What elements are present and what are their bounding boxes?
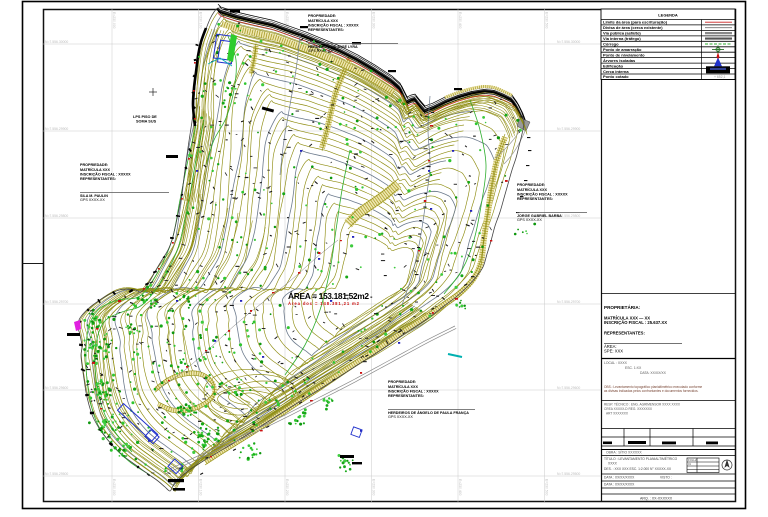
svg-text:N=7.556.30000: N=7.556.30000	[45, 40, 68, 44]
svg-text:N=7.556.29600: N=7.556.29600	[45, 386, 68, 390]
svg-text:MATRÍCULA XXX: MATRÍCULA XXX	[308, 18, 338, 23]
svg-text:Via pública (asfalto): Via pública (asfalto)	[603, 31, 641, 36]
svg-text:INSCRIÇÃO FISCAL : XXXXX: INSCRIÇÃO FISCAL : XXXXX	[388, 389, 439, 394]
svg-text:N=7.556.29700: N=7.556.29700	[45, 300, 68, 304]
svg-text:PROPRIETÁRIA:: PROPRIETÁRIA:	[604, 304, 641, 310]
svg-text:E=230.300: E=230.300	[372, 12, 376, 29]
svg-text:N=7.556.29500: N=7.556.29500	[557, 472, 580, 476]
svg-text:N=7.556.29900: N=7.556.29900	[557, 127, 580, 131]
svg-text:REPRESENTANTES:: REPRESENTANTES:	[308, 28, 344, 32]
svg-text:E=230.100: E=230.100	[199, 12, 203, 29]
svg-text:LPS PISO DE: LPS PISO DE	[133, 115, 157, 119]
svg-text:INSCRIÇÃO FISCAL : XXXXX: INSCRIÇÃO FISCAL : XXXXX	[517, 192, 568, 197]
svg-text:DATA : XX/XX/XXXX: DATA : XX/XX/XXXX	[604, 483, 635, 487]
svg-text:Ponto de nivelamento: Ponto de nivelamento	[603, 52, 645, 57]
svg-text:E=230.000: E=230.000	[112, 12, 116, 29]
svg-text:as divisas indicadas pelos con: as divisas indicadas pelos confrontantes…	[604, 389, 699, 393]
svg-text:E=230.100: E=230.100	[199, 479, 203, 496]
svg-text:OBRA : SÍTIO XXXXXX: OBRA : SÍTIO XXXXXX	[606, 451, 642, 455]
svg-text:SOMA SUS: SOMA SUS	[136, 120, 157, 124]
svg-text:GPS XXXX-XX: GPS XXXX-XX	[517, 218, 542, 222]
svg-text:RESP. TÉCNICO : ENG. AGRIMENS: RESP. TÉCNICO : ENG. AGRIMENSOR XXXX XXX…	[604, 402, 681, 407]
svg-text:N=7.556.29600: N=7.556.29600	[557, 386, 580, 390]
svg-text:E=230.300: E=230.300	[372, 479, 376, 496]
svg-text:PROPRIEDADE:: PROPRIEDADE:	[308, 14, 336, 18]
svg-text:Ponto cotado: Ponto cotado	[603, 74, 629, 79]
svg-text:DATA: XX/XX/XX: DATA: XX/XX/XX	[640, 371, 667, 375]
svg-text:Córrego: Córrego	[603, 42, 619, 47]
svg-text:CREA XXXXX-D REG. X: CREA XXXXX-D REG. XXXXXXX	[604, 407, 653, 411]
svg-text:Ponto de amarração: Ponto de amarração	[603, 47, 642, 52]
svg-text:E=230.500: E=230.500	[545, 12, 549, 29]
svg-text:E=230.000: E=230.000	[112, 479, 116, 496]
svg-text:01: 01	[688, 462, 692, 466]
svg-text:PROPRIEDADE:: PROPRIEDADE:	[80, 163, 108, 167]
svg-text:E=230.400: E=230.400	[458, 12, 462, 29]
svg-text:Cerca interna: Cerca interna	[603, 69, 629, 74]
svg-text:INSCRIÇÃO FISCAL : XXXXX: INSCRIÇÃO FISCAL : XXXXX	[308, 23, 359, 28]
svg-text:Área doc = 148.381,21 m2: Área doc = 148.381,21 m2	[288, 301, 360, 306]
svg-text:INSCRIÇÃO FISCAL : 25.637.XX: INSCRIÇÃO FISCAL : 25.637.XX	[604, 320, 667, 325]
svg-text:E=230.500: E=230.500	[545, 479, 549, 496]
svg-text:E=230.200: E=230.200	[285, 479, 289, 496]
svg-text:REPRESENTANTES:: REPRESENTANTES:	[388, 394, 424, 398]
svg-text:GPS XXXX-XX: GPS XXXX-XX	[80, 198, 105, 202]
svg-text:PROPRIEDADE:: PROPRIEDADE:	[517, 183, 545, 187]
svg-text:MATRÍCULA XXX: MATRÍCULA XXX	[388, 384, 418, 389]
svg-text:SPE: XXX: SPE: XXX	[604, 349, 623, 354]
svg-text:N=7.556.29900: N=7.556.29900	[45, 127, 68, 131]
svg-text:N=7.556.29500: N=7.556.29500	[45, 472, 68, 476]
svg-text:DATA : XX/XX/XXXX: DATA : XX/XX/XXXX	[604, 476, 635, 480]
svg-text:INSCRIÇÃO FISCAL : XXXXX: INSCRIÇÃO FISCAL : XXXXX	[80, 172, 131, 177]
svg-text:ESC. 1:XX: ESC. 1:XX	[625, 366, 642, 370]
svg-text:ARQ. : XX-XXXXXX: ARQ. : XX-XXXXXX	[640, 497, 673, 501]
svg-text:TÍTULO : LEVANTAMENTO PLANIALT: TÍTULO : LEVANTAMENTO PLANIALTIMÉTRICO	[604, 456, 678, 461]
svg-text:ART XXXXXXX: ART XXXXXXX	[606, 412, 629, 416]
svg-text:Limite da área (para escritura: Limite da área (para escrituração)	[603, 20, 668, 25]
svg-text:LOCAL : XXXX: LOCAL : XXXX	[604, 361, 628, 365]
svg-text:N=7.556.29800: N=7.556.29800	[45, 214, 68, 218]
svg-text:N=7.556.30000: N=7.556.30000	[557, 40, 580, 44]
svg-text:N=7.556.29700: N=7.556.29700	[557, 300, 580, 304]
svg-text:GPS XXXX-XX: GPS XXXX-XX	[308, 49, 333, 53]
svg-text:XXXX: XXXX	[608, 462, 618, 466]
svg-text:GPS XXXX-XX: GPS XXXX-XX	[388, 415, 413, 419]
svg-text:E=230.400: E=230.400	[458, 479, 462, 496]
svg-text:VISTO :: VISTO :	[660, 476, 672, 480]
svg-text:Divisa de área (cerca existent: Divisa de área (cerca existente)	[603, 25, 663, 30]
svg-text:+ 652,1: + 652,1	[714, 75, 726, 79]
svg-text:DES. : XXX XXX ESC. 1:2.000: DES. : XXX XXX ESC. 1:2.000 N° XXXXX-XX	[604, 467, 672, 471]
svg-text:ÁREA = 153.181,52m2: ÁREA = 153.181,52m2	[288, 290, 369, 301]
svg-text:LEGENDA: LEGENDA	[658, 13, 678, 18]
svg-text:Árvores isoladas: Árvores isoladas	[603, 58, 636, 63]
svg-text:PROPRIEDADE:: PROPRIEDADE:	[388, 380, 416, 384]
svg-text:Edificação: Edificação	[603, 63, 624, 68]
svg-text:Via interna (tráfego): Via interna (tráfego)	[603, 36, 641, 41]
svg-text:MATRÍCULA XXX: MATRÍCULA XXX	[80, 167, 110, 172]
svg-text:REPRESENTANTES:: REPRESENTANTES:	[80, 177, 116, 181]
svg-text:MATRÍCULA XXX: MATRÍCULA XXX	[517, 187, 547, 192]
svg-text:REPRESENTANTES:: REPRESENTANTES:	[517, 197, 553, 201]
svg-text:REPRESENTANTES:: REPRESENTANTES:	[604, 331, 645, 336]
